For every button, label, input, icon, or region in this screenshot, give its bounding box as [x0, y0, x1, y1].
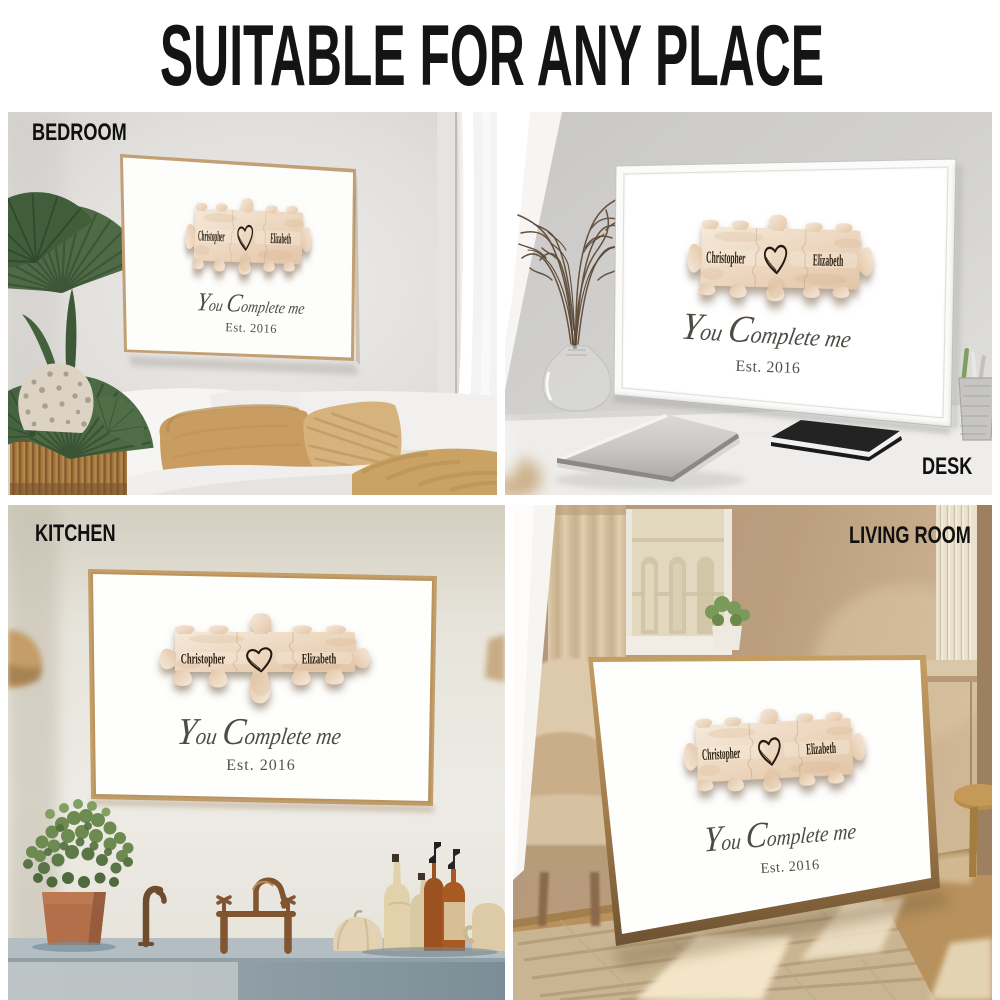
svg-text:Est. 2016: Est. 2016	[226, 757, 295, 774]
svg-text:Est. 2016: Est. 2016	[735, 358, 801, 377]
svg-text:Est. 2016: Est. 2016	[225, 320, 277, 336]
